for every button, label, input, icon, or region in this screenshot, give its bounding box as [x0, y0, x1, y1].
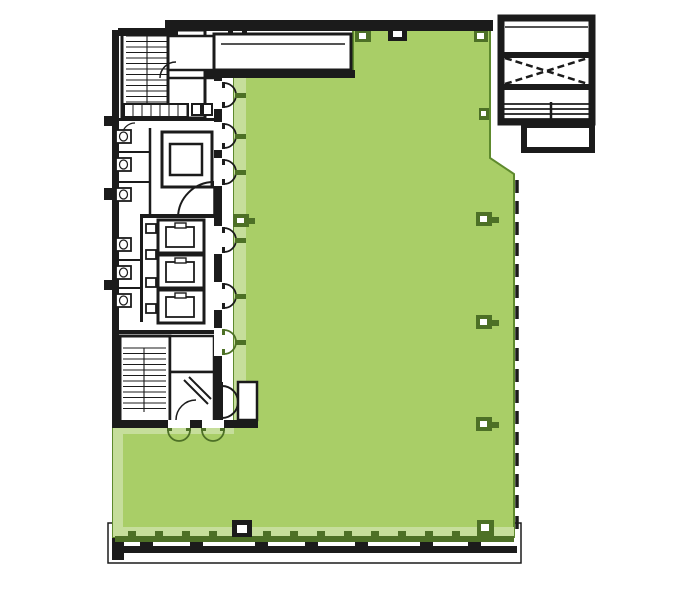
- floor-plan-drawing: [0, 0, 681, 597]
- floor-plan-page: [0, 0, 681, 597]
